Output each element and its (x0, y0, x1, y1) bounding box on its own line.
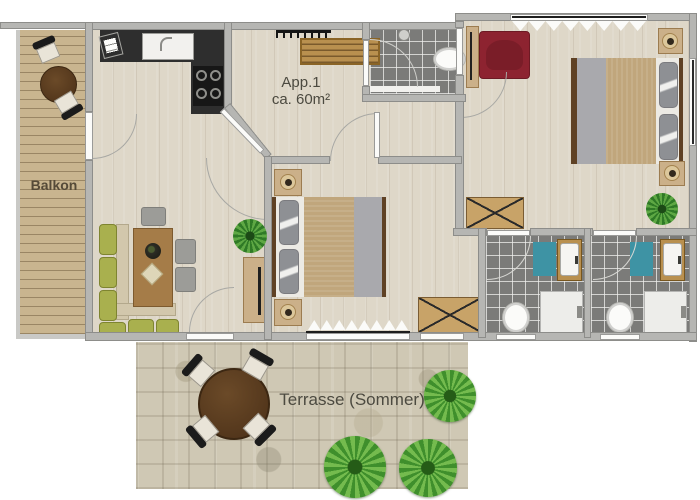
floorplan: Balkon (0, 0, 700, 500)
wardrobe (418, 297, 482, 333)
terrace-door-leaf (186, 333, 234, 340)
shower-fixture (577, 306, 582, 318)
wall-top-balcony (0, 22, 88, 29)
curtain-rail (306, 331, 410, 333)
stove-burner (196, 70, 207, 81)
wall-top-left-block (85, 22, 462, 30)
pillow (279, 249, 299, 294)
lamp (280, 174, 296, 190)
window-line (692, 60, 694, 144)
balcony-label: Balkon (22, 178, 86, 194)
plant (424, 370, 476, 422)
dining-chair (141, 207, 166, 226)
bed (571, 58, 683, 164)
bath2-door-leaf (593, 230, 636, 236)
bed-blanket-gray (354, 197, 382, 297)
lamp (662, 33, 678, 49)
wall-hall-bedroom-right (378, 156, 462, 164)
lamp (664, 165, 680, 181)
wall-baths-top-c (636, 228, 697, 236)
pillow (659, 114, 678, 160)
wall-tv (258, 267, 261, 315)
wall-bedroom2-right (478, 228, 486, 338)
wall-kitchen (224, 22, 232, 112)
curtain-rail (512, 16, 646, 18)
bed-headboard (679, 58, 683, 164)
table-bowl (145, 243, 161, 259)
bedroom2-door-leaf (374, 112, 380, 158)
bed-blanket-gray (577, 58, 606, 164)
shower-head-icon (398, 29, 410, 41)
terrace-label: Terrasse (Sommer) (252, 390, 452, 409)
bath1-door-leaf (487, 230, 530, 236)
window (420, 333, 464, 340)
wall-left-lower (85, 160, 93, 340)
balcony-door-leaf (85, 112, 93, 160)
plant (646, 193, 678, 225)
wall-tv (470, 32, 472, 80)
toilet (502, 302, 530, 333)
bath-mat (533, 242, 556, 276)
wall-left-upper (85, 22, 93, 112)
dining-chair (175, 239, 196, 264)
apartment-area-label: ca. 60m² (250, 92, 352, 109)
sink-tap (678, 256, 681, 264)
sofa-cushion (99, 224, 117, 255)
plant (324, 436, 386, 498)
bed-blanket-tan (606, 58, 656, 164)
wardrobe (466, 197, 524, 229)
bath-top-door-leaf (363, 40, 369, 86)
stove-burner (196, 88, 207, 99)
kitchen-faucet (160, 37, 172, 51)
balcony-railing (16, 30, 20, 334)
wall-bath-top-left (362, 22, 370, 40)
bed-blanket-tan (304, 197, 354, 297)
apartment-label: App.1 (250, 75, 352, 92)
wall-hall-bedroom-left (264, 156, 330, 164)
dining-chair (175, 267, 196, 292)
toilet (606, 302, 634, 333)
wall-bedroom2-left (264, 156, 272, 340)
armchair-cushion (486, 40, 523, 70)
wall-bath-top-bottom (362, 94, 466, 102)
bed (272, 197, 386, 297)
sofa-cushion (99, 290, 117, 321)
plant (233, 219, 267, 253)
pillow (279, 200, 299, 245)
stove-burner (210, 70, 221, 81)
shower-fixture (681, 306, 686, 318)
sink-tap (575, 256, 578, 264)
lamp (280, 304, 296, 320)
bedroom1-door-leaf (456, 28, 463, 75)
plant (399, 439, 457, 497)
bed-footboard (382, 197, 386, 297)
window (600, 334, 640, 340)
hallway-grill (276, 30, 331, 38)
wall-bath-divider (584, 228, 591, 338)
wall-divider-top (455, 21, 464, 28)
pillow (659, 62, 678, 108)
window (496, 334, 536, 340)
sofa-cushion (99, 257, 117, 288)
balcony-railing (16, 334, 88, 339)
window (306, 333, 410, 340)
stove-burner (210, 88, 221, 99)
